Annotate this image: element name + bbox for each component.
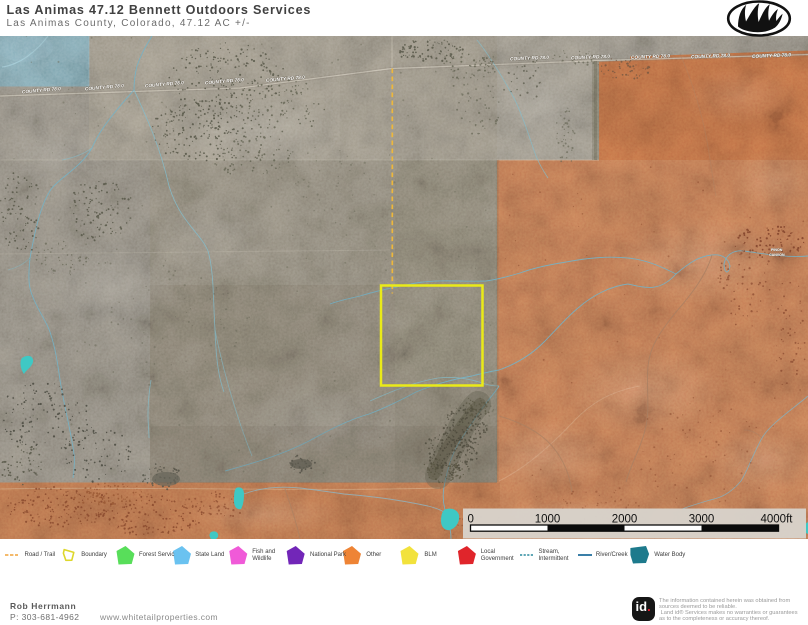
svg-text:3000: 3000 — [689, 514, 715, 526]
svg-text:4000ft: 4000ft — [761, 514, 794, 526]
svg-text:2000: 2000 — [612, 514, 638, 526]
svg-text:PINON: PINON — [771, 248, 783, 252]
svg-text:0: 0 — [468, 514, 474, 526]
svg-text:1000: 1000 — [535, 514, 561, 526]
svg-text:CANYON: CANYON — [769, 253, 785, 257]
